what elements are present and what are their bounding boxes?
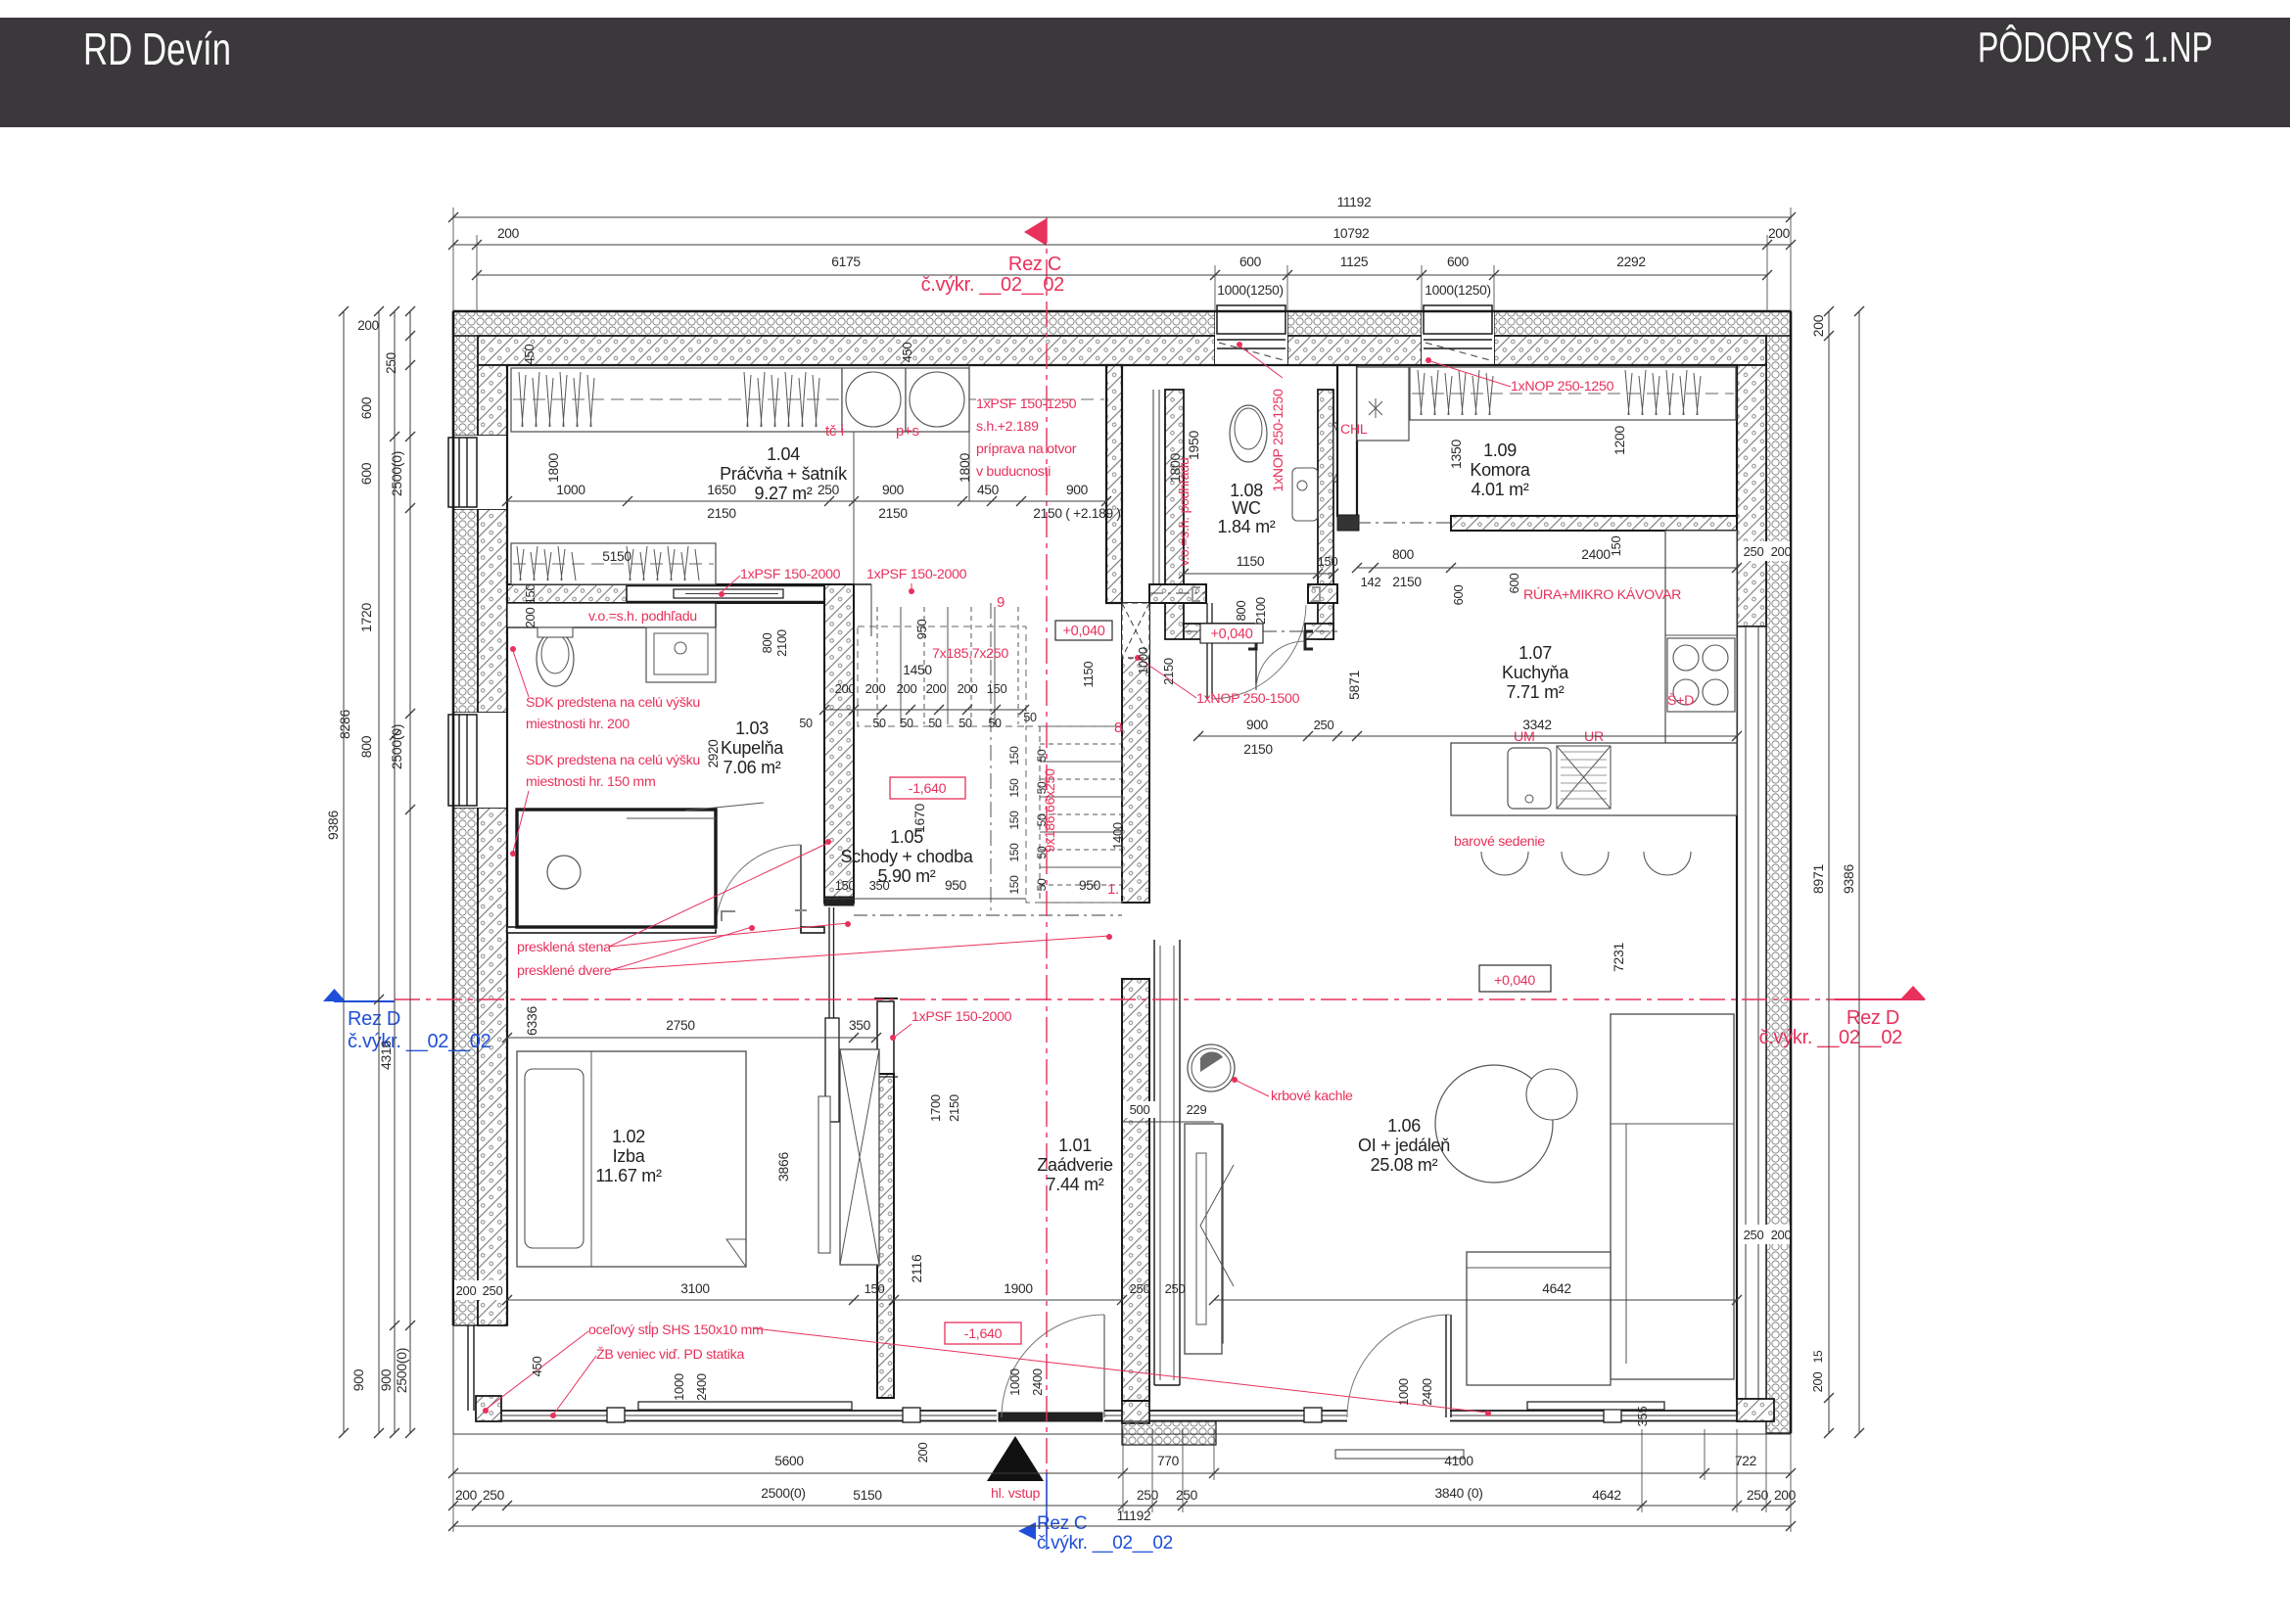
svg-text:50: 50	[988, 717, 1002, 730]
svg-text:200: 200	[357, 318, 379, 333]
svg-text:50: 50	[1035, 846, 1049, 858]
svg-text:8: 8	[1114, 719, 1122, 736]
svg-text:1000: 1000	[1396, 1378, 1411, 1406]
svg-text:1.04: 1.04	[767, 444, 800, 464]
svg-text:CHL: CHL	[1340, 422, 1368, 438]
svg-text:+0,040: +0,040	[1494, 973, 1535, 989]
svg-text:Rez D: Rez D	[348, 1008, 400, 1030]
svg-text:presklená stena: presklená stena	[517, 940, 611, 955]
svg-text:4316: 4316	[378, 1041, 394, 1070]
svg-text:v.o.=s.h. podhľadu: v.o.=s.h. podhľadu	[588, 609, 697, 625]
svg-text:8971: 8971	[1810, 864, 1826, 894]
svg-text:150: 150	[1007, 843, 1021, 862]
svg-text:150: 150	[1007, 746, 1021, 766]
svg-text:barové sedenie: barové sedenie	[1454, 834, 1545, 850]
svg-text:9: 9	[997, 594, 1005, 611]
svg-text:50: 50	[1023, 711, 1037, 724]
svg-text:krbové kachle: krbové kachle	[1271, 1089, 1353, 1104]
svg-text:1000: 1000	[672, 1373, 686, 1401]
svg-text:250: 250	[818, 483, 840, 497]
svg-text:50: 50	[958, 717, 972, 730]
svg-text:3342: 3342	[1522, 718, 1552, 732]
svg-text:2292: 2292	[1616, 255, 1646, 269]
svg-text:950: 950	[914, 620, 929, 640]
svg-text:600: 600	[1507, 574, 1521, 594]
svg-text:50: 50	[1035, 781, 1049, 794]
svg-text:2400: 2400	[1420, 1378, 1434, 1406]
svg-text:9386: 9386	[325, 811, 341, 840]
svg-text:7.71 m²: 7.71 m²	[1507, 682, 1565, 702]
svg-text:4642: 4642	[1542, 1281, 1571, 1296]
svg-text:2150: 2150	[878, 506, 908, 521]
svg-text:miestnosti hr. 150 mm: miestnosti hr. 150 mm	[526, 774, 655, 790]
svg-text:229: 229	[1187, 1102, 1207, 1117]
svg-text:150: 150	[1007, 811, 1021, 830]
svg-text:200: 200	[1771, 544, 1792, 559]
svg-text:900: 900	[1066, 483, 1089, 497]
svg-text:2750: 2750	[666, 1018, 695, 1033]
svg-text:250: 250	[1176, 1488, 1198, 1503]
svg-text:11192: 11192	[1337, 195, 1372, 209]
svg-text:3866: 3866	[775, 1152, 791, 1182]
svg-text:1.01: 1.01	[1058, 1136, 1092, 1155]
svg-text:2100: 2100	[1253, 597, 1268, 625]
svg-text:RD Devín: RD Devín	[83, 23, 231, 74]
svg-text:1670: 1670	[911, 804, 927, 833]
svg-text:2500(0): 2500(0)	[394, 1348, 409, 1393]
svg-text:2920: 2920	[706, 740, 721, 768]
svg-text:Schody + chodba: Schody + chodba	[840, 847, 973, 866]
svg-text:2150: 2150	[707, 506, 736, 521]
svg-text:250: 250	[1130, 1281, 1150, 1296]
svg-text:9386: 9386	[1841, 864, 1856, 894]
svg-text:presklené dvere: presklené dvere	[517, 963, 612, 979]
svg-text:1800: 1800	[1167, 453, 1183, 483]
svg-text:OI + jedáleň: OI + jedáleň	[1358, 1136, 1450, 1155]
svg-text:1.08: 1.08	[1230, 481, 1263, 500]
svg-text:-1,640: -1,640	[909, 781, 947, 797]
svg-text:9.27 m²: 9.27 m²	[755, 484, 813, 503]
svg-text:2500(0): 2500(0)	[389, 724, 404, 769]
svg-text:200: 200	[455, 1488, 478, 1503]
svg-text:miestnosti hr. 200: miestnosti hr. 200	[526, 717, 630, 732]
svg-text:1xPSF 150-2000: 1xPSF 150-2000	[911, 1009, 1012, 1025]
svg-text:5871: 5871	[1346, 671, 1362, 700]
svg-text:250: 250	[483, 1283, 503, 1298]
svg-text:50: 50	[1035, 749, 1049, 762]
svg-text:200: 200	[958, 681, 978, 696]
svg-text:1000: 1000	[556, 483, 585, 497]
svg-text:450: 450	[522, 345, 537, 365]
svg-text:1xPSF 150-1250: 1xPSF 150-1250	[976, 396, 1077, 412]
svg-text:770: 770	[1157, 1454, 1180, 1468]
svg-text:50: 50	[872, 717, 886, 730]
svg-text:11.67 m²: 11.67 m²	[595, 1166, 662, 1185]
svg-text:450: 450	[530, 1357, 544, 1377]
svg-text:1xNOP 250-1250: 1xNOP 250-1250	[1511, 379, 1614, 394]
svg-text:3100: 3100	[680, 1281, 710, 1296]
svg-text:1.06: 1.06	[1387, 1116, 1421, 1136]
svg-text:1400: 1400	[1110, 822, 1125, 850]
svg-text:5150: 5150	[602, 549, 631, 564]
svg-text:1.09: 1.09	[1483, 441, 1517, 460]
svg-text:2150: 2150	[1243, 742, 1273, 757]
svg-text:350: 350	[869, 878, 890, 893]
svg-text:600: 600	[358, 396, 374, 419]
svg-text:800: 800	[1234, 601, 1248, 622]
svg-text:č.výkr. __02__02: č.výkr. __02__02	[1037, 1533, 1173, 1554]
svg-text:200: 200	[1768, 226, 1791, 241]
svg-text:200: 200	[865, 681, 886, 696]
svg-text:10792: 10792	[1333, 226, 1370, 241]
svg-text:1000: 1000	[1007, 1369, 1022, 1396]
svg-text:5150: 5150	[853, 1488, 882, 1503]
svg-text:950: 950	[1079, 878, 1101, 893]
svg-text:č.výkr. __02__02: č.výkr. __02__02	[921, 274, 1065, 296]
svg-text:príprava na otvor: príprava na otvor	[976, 441, 1077, 457]
svg-text:1.03: 1.03	[735, 719, 769, 738]
svg-text:Izba: Izba	[613, 1146, 646, 1166]
svg-text:Práčvňa + šatník: Práčvňa + šatník	[720, 464, 848, 484]
svg-text:Rez C: Rez C	[1037, 1513, 1087, 1534]
svg-text:1125: 1125	[1340, 255, 1369, 269]
svg-text:150: 150	[835, 878, 856, 893]
svg-text:250: 250	[1314, 718, 1334, 732]
svg-text:2100: 2100	[774, 629, 789, 657]
svg-text:2150: 2150	[1392, 575, 1422, 589]
svg-text:5600: 5600	[774, 1454, 804, 1468]
svg-text:150: 150	[1007, 778, 1021, 798]
svg-text:1xPSF 150-2000: 1xPSF 150-2000	[740, 567, 841, 582]
svg-text:800: 800	[760, 633, 774, 654]
svg-text:PÔDORYS 1.NP: PÔDORYS 1.NP	[1978, 23, 2213, 71]
svg-text:SDK predstena na celú výšku: SDK predstena na celú výšku	[526, 695, 700, 711]
svg-text:č.výkr. __02__02: č.výkr. __02__02	[1759, 1027, 1903, 1048]
svg-text:142: 142	[1361, 575, 1381, 589]
svg-text:250: 250	[1744, 544, 1764, 559]
svg-text:250: 250	[1747, 1488, 1769, 1503]
svg-text:450: 450	[900, 343, 914, 363]
svg-text:oceľový stĺp SHS 150x10 mm: oceľový stĺp SHS 150x10 mm	[588, 1321, 764, 1338]
svg-text:1.: 1.	[1107, 881, 1119, 898]
svg-text:1.07: 1.07	[1519, 643, 1552, 663]
svg-text:4642: 4642	[1592, 1488, 1621, 1503]
svg-text:1xPSF 150-2000: 1xPSF 150-2000	[866, 567, 967, 582]
svg-text:1xNOP 250-1250: 1xNOP 250-1250	[1271, 389, 1286, 492]
svg-text:-1,640: -1,640	[964, 1326, 1003, 1342]
svg-text:7231: 7231	[1611, 943, 1626, 972]
svg-text:s.h.+2.189: s.h.+2.189	[976, 419, 1039, 435]
svg-text:7.44 m²: 7.44 m²	[1047, 1175, 1104, 1194]
svg-text:1720: 1720	[358, 603, 374, 632]
svg-text:500: 500	[1130, 1102, 1150, 1117]
svg-text:1350: 1350	[1448, 440, 1464, 469]
svg-text:11192: 11192	[1117, 1508, 1151, 1523]
svg-text:150: 150	[1609, 536, 1623, 557]
svg-text:4100: 4100	[1444, 1454, 1473, 1468]
svg-text:200: 200	[456, 1283, 477, 1298]
svg-text:v buducnosti: v buducnosti	[976, 464, 1051, 480]
svg-text:1000: 1000	[1136, 647, 1150, 674]
svg-text:1650: 1650	[707, 483, 736, 497]
svg-text:RÚRA+MIKRO KÁVOVAR: RÚRA+MIKRO KÁVOVAR	[1523, 586, 1681, 603]
svg-text:2400: 2400	[1581, 547, 1611, 562]
svg-text:tč-i: tč-i	[825, 423, 844, 440]
svg-text:9x186,66x250: 9x186,66x250	[1043, 768, 1058, 853]
svg-text:150: 150	[523, 584, 537, 605]
svg-text:900: 900	[882, 483, 905, 497]
svg-text:Kuchyňa: Kuchyňa	[1502, 663, 1569, 682]
svg-text:Zaádverie: Zaádverie	[1037, 1155, 1113, 1175]
svg-text:1xNOP 250-1500: 1xNOP 250-1500	[1196, 691, 1300, 707]
svg-text:1900: 1900	[1004, 1281, 1033, 1296]
svg-text:UR: UR	[1584, 729, 1604, 745]
svg-text:p+s: p+s	[896, 423, 919, 440]
svg-text:3840 (0): 3840 (0)	[1435, 1486, 1483, 1501]
svg-text:1150: 1150	[1081, 662, 1096, 688]
svg-text:hl. vstup: hl. vstup	[991, 1486, 1041, 1502]
svg-text:600: 600	[1451, 585, 1466, 606]
svg-text:200: 200	[915, 1443, 930, 1463]
svg-text:200: 200	[835, 681, 856, 696]
svg-text:250: 250	[1744, 1228, 1764, 1242]
svg-text:250: 250	[1137, 1488, 1159, 1503]
svg-text:150: 150	[865, 1281, 885, 1296]
svg-text:Š+D: Š+D	[1667, 692, 1694, 709]
svg-text:25.08 m²: 25.08 m²	[1371, 1155, 1438, 1175]
svg-text:2150: 2150	[1161, 658, 1176, 685]
svg-text:2116: 2116	[909, 1254, 924, 1282]
svg-text:1800: 1800	[545, 453, 561, 483]
svg-text:6336: 6336	[524, 1006, 539, 1036]
svg-text:900: 900	[378, 1369, 394, 1391]
svg-text:600: 600	[358, 462, 374, 485]
svg-text:1450: 1450	[903, 663, 932, 677]
svg-text:200: 200	[497, 226, 520, 241]
svg-text:4.01 m²: 4.01 m²	[1472, 480, 1529, 499]
svg-text:Rez D: Rez D	[1846, 1007, 1899, 1029]
svg-text:200: 200	[1810, 314, 1826, 337]
svg-text:250: 250	[483, 1488, 505, 1503]
svg-text:600: 600	[1239, 255, 1262, 269]
svg-text:200: 200	[897, 681, 917, 696]
svg-text:50: 50	[799, 717, 813, 730]
svg-text:50: 50	[928, 717, 942, 730]
svg-text:1000(1250): 1000(1250)	[1217, 283, 1284, 298]
svg-text:8286: 8286	[337, 710, 352, 739]
svg-text:450: 450	[977, 483, 1000, 497]
svg-text:2400: 2400	[1030, 1369, 1045, 1396]
svg-text:250: 250	[1165, 1281, 1186, 1296]
svg-text:ŽB veniec viď. PD statika: ŽB veniec viď. PD statika	[596, 1346, 744, 1363]
svg-text:350: 350	[849, 1018, 871, 1033]
svg-text:WC: WC	[1232, 498, 1261, 518]
svg-text:150: 150	[987, 681, 1007, 696]
svg-text:1.02: 1.02	[612, 1127, 645, 1146]
svg-text:900: 900	[1246, 718, 1269, 732]
svg-text:250: 250	[384, 352, 398, 374]
svg-text:800: 800	[358, 735, 374, 758]
svg-text:2150 ( +2.189 ): 2150 ( +2.189 )	[1033, 506, 1120, 521]
svg-text:600: 600	[1447, 255, 1470, 269]
svg-text:200: 200	[1810, 1372, 1825, 1393]
svg-text:722: 722	[1735, 1454, 1756, 1468]
svg-text:200: 200	[1771, 1228, 1792, 1242]
svg-text:150: 150	[1318, 554, 1338, 569]
svg-text:900: 900	[351, 1369, 366, 1391]
svg-text:15: 15	[1811, 1350, 1825, 1363]
svg-text:Kupelňa: Kupelňa	[721, 738, 784, 758]
svg-text:Komora: Komora	[1470, 460, 1531, 480]
svg-text:2400: 2400	[694, 1373, 709, 1401]
svg-text:7.06 m²: 7.06 m²	[724, 758, 781, 777]
svg-text:1800: 1800	[957, 453, 972, 483]
svg-text:1950: 1950	[1186, 431, 1201, 460]
svg-text:7x185,7x250: 7x185,7x250	[932, 646, 1008, 662]
svg-text:1700: 1700	[928, 1094, 943, 1122]
svg-text:950: 950	[945, 878, 967, 893]
svg-text:+0,040: +0,040	[1063, 624, 1105, 639]
svg-text:50: 50	[1035, 878, 1049, 891]
svg-text:800: 800	[1392, 547, 1415, 562]
svg-text:50: 50	[1035, 813, 1049, 826]
svg-text:1150: 1150	[1237, 554, 1265, 569]
svg-text:2150: 2150	[947, 1094, 961, 1122]
svg-text:+0,040: +0,040	[1211, 626, 1253, 642]
svg-text:150: 150	[1007, 875, 1021, 895]
svg-text:2500(0): 2500(0)	[761, 1486, 805, 1501]
svg-text:č.výkr. __02__02: č.výkr. __02__02	[348, 1031, 491, 1052]
svg-text:1200: 1200	[1612, 426, 1627, 455]
svg-text:50: 50	[900, 717, 913, 730]
svg-text:2500(0): 2500(0)	[389, 451, 404, 496]
svg-text:355: 355	[1635, 1407, 1650, 1427]
svg-text:SDK predstena na celú výšku: SDK predstena na celú výšku	[526, 753, 700, 768]
svg-text:6175: 6175	[831, 255, 861, 269]
svg-text:200: 200	[523, 608, 537, 628]
svg-text:1.84 m²: 1.84 m²	[1218, 517, 1276, 536]
svg-text:200: 200	[1774, 1488, 1797, 1503]
svg-text:1000(1250): 1000(1250)	[1425, 283, 1491, 298]
svg-text:Rez C: Rez C	[1008, 254, 1061, 275]
svg-text:200: 200	[926, 681, 947, 696]
